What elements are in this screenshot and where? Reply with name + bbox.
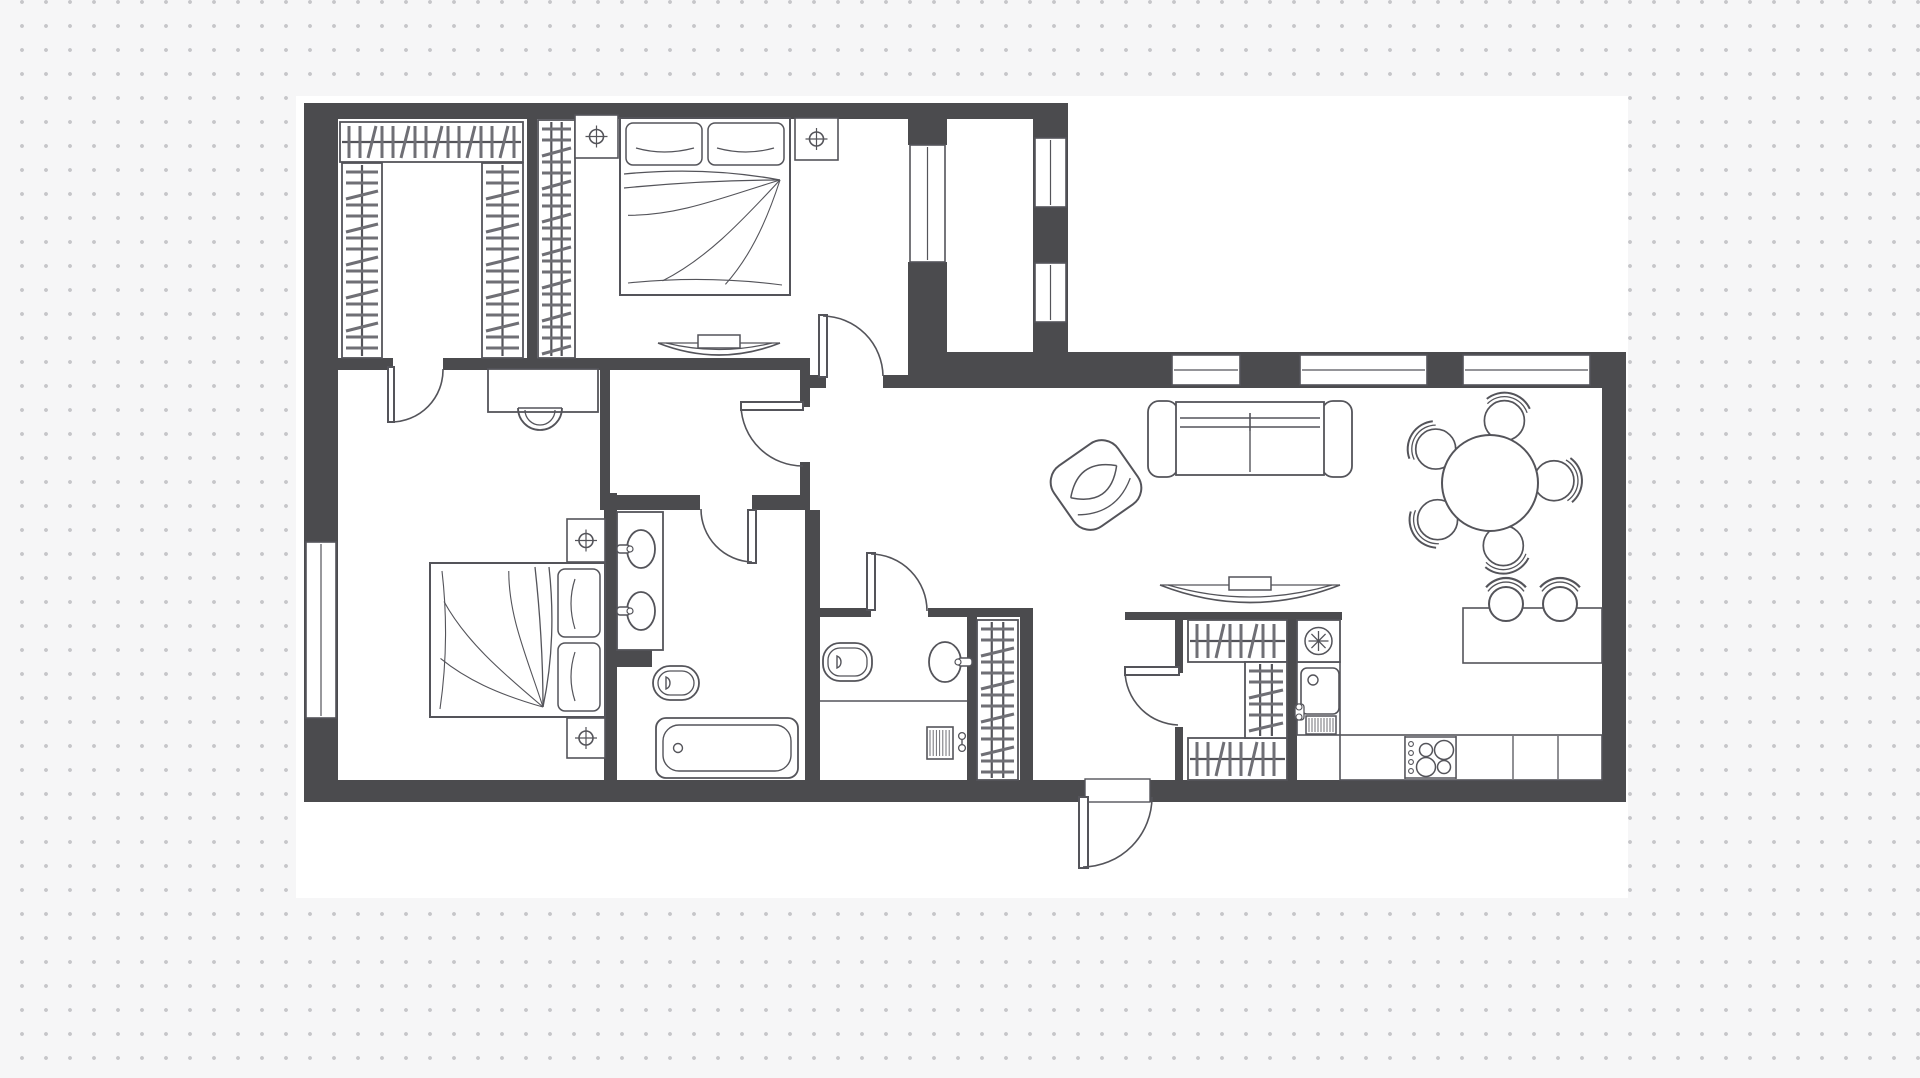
floor-plan-svg: [0, 0, 1920, 1078]
kitchen-counter-bottom: [1340, 735, 1602, 780]
bathtub: [656, 718, 798, 778]
window-balcony-lower: [1035, 263, 1066, 322]
storage-shelf-bottom: [1188, 738, 1287, 780]
window-bedroom-balcony: [910, 145, 945, 262]
storage-shelf-mid: [1245, 662, 1287, 738]
window-left-bedroom: [306, 542, 336, 718]
toilet: [823, 643, 872, 681]
master-wardrobe: [538, 120, 575, 358]
nightstand: [795, 118, 838, 160]
nightstand: [575, 115, 618, 158]
entrance-threshold: [1085, 779, 1150, 802]
bed-second: [430, 563, 605, 717]
bar-counter: [1463, 608, 1602, 663]
closet-shelf-left: [342, 163, 382, 358]
kitchen-sink: [1295, 668, 1339, 720]
nightstand: [567, 718, 605, 758]
storage-shelf-top: [1188, 620, 1287, 662]
sofa: [1148, 401, 1352, 477]
dishwasher: [1306, 716, 1336, 734]
nightstand: [567, 519, 605, 562]
bidet: [653, 666, 699, 700]
window-living-2: [1300, 355, 1427, 385]
closet-shelf-right: [482, 163, 523, 358]
desk: [488, 369, 598, 412]
cooktop: [1405, 737, 1456, 778]
bed-master: [620, 118, 790, 295]
floor-plan-document: [0, 0, 1920, 1078]
closet-shelf-top: [340, 122, 523, 162]
window-living-1: [1172, 355, 1240, 385]
fridge: [1297, 620, 1340, 662]
window-living-3: [1463, 355, 1590, 385]
hall-wardrobe: [977, 620, 1018, 780]
window-balcony-upper: [1035, 138, 1066, 207]
bathroom-vanity: [617, 512, 663, 650]
